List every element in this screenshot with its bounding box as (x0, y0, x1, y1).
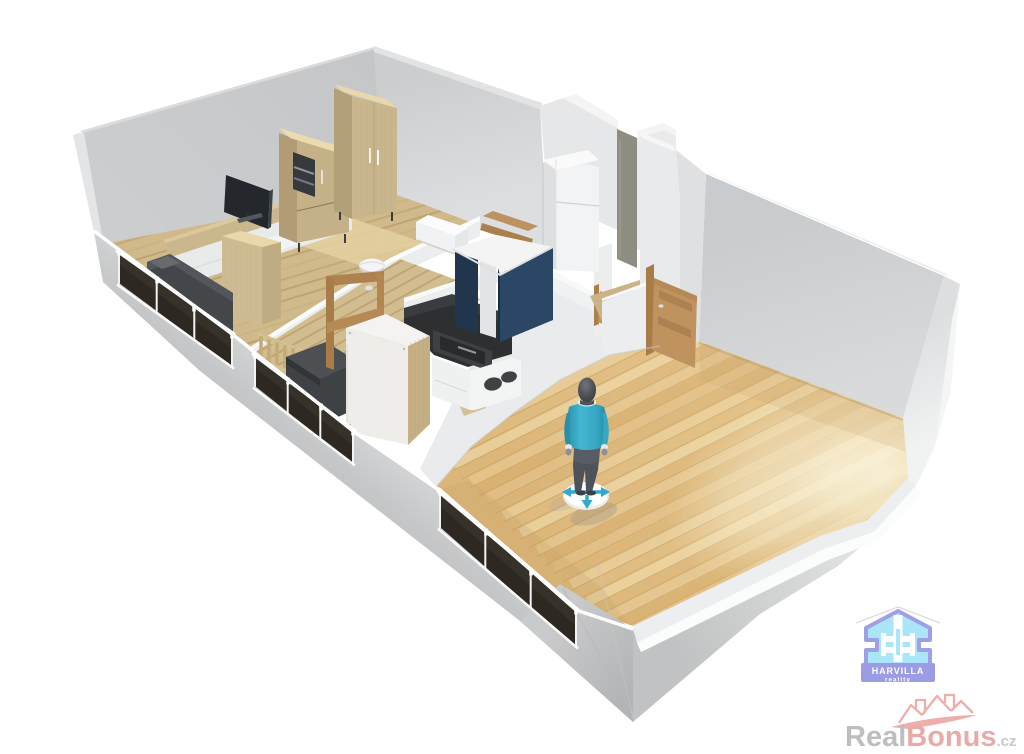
svg-text:RealBonus.cz: RealBonus.cz (845, 721, 1017, 753)
svg-text:HARVILLA: HARVILLA (872, 666, 925, 676)
svg-text:reality: reality (885, 678, 911, 684)
